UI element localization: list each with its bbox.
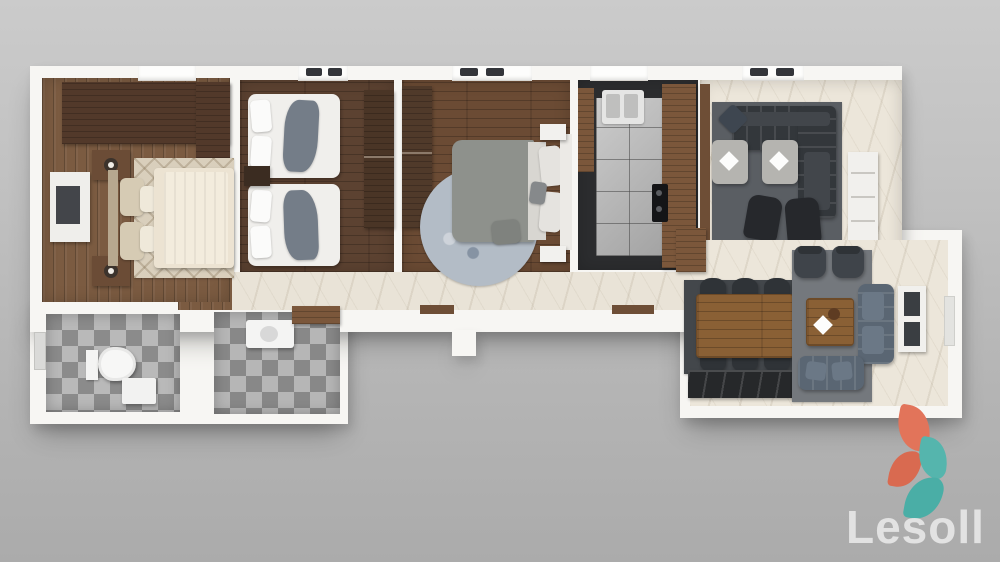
- bathroom-window: [34, 332, 46, 370]
- ac-vent: [776, 68, 794, 76]
- vanity-basin: [260, 326, 278, 342]
- master-bed-headboard: [108, 170, 118, 266]
- accent-chair: [784, 197, 822, 246]
- wardrobe-seam: [402, 152, 432, 154]
- window: [138, 66, 196, 81]
- media-shelf-unit: [848, 152, 878, 240]
- pantry-cabinet: [676, 228, 706, 272]
- sofa-cushion: [862, 326, 884, 354]
- cooktop-knob: [656, 206, 662, 212]
- wardrobe-seam: [364, 156, 394, 158]
- toilet-bowl: [98, 347, 136, 381]
- sideboard: [688, 370, 794, 398]
- pillow: [250, 99, 273, 133]
- master-blanket: [164, 172, 228, 264]
- sink-basin: [624, 94, 638, 118]
- brand-wordmark: Lesoll: [846, 500, 985, 554]
- tv-screen: [56, 186, 80, 224]
- sofa-cushion: [831, 361, 853, 381]
- toilet-tank: [86, 350, 98, 380]
- kids-wardrobe: [364, 90, 394, 228]
- pillow: [250, 135, 272, 168]
- cooktop-knob: [656, 190, 662, 196]
- shelf-line: [851, 172, 875, 174]
- bathroom-wood-counter: [292, 306, 340, 324]
- kitchen-cabinet-left: [578, 88, 594, 172]
- ac-vent: [460, 68, 478, 76]
- cushion: [529, 181, 548, 205]
- bed-throw: [283, 189, 319, 260]
- table-decor: [828, 308, 840, 320]
- bathroom-cabinet: [122, 378, 156, 404]
- pillow: [250, 225, 272, 258]
- framed-art: [904, 292, 920, 316]
- bedside-shelf: [540, 124, 566, 140]
- master-wardrobe-corner: [196, 82, 230, 170]
- side-window: [944, 296, 955, 346]
- sink-basin: [606, 94, 620, 118]
- bed-headboard: [560, 134, 572, 250]
- door-threshold: [612, 305, 654, 314]
- ac-vent: [750, 68, 768, 76]
- framed-art: [904, 322, 920, 346]
- shelf-line: [851, 220, 875, 222]
- sofa-cushion: [805, 361, 827, 382]
- ac-vent: [486, 68, 504, 76]
- logo-leaf-teal-top: [915, 436, 951, 481]
- table-lamp: [104, 264, 118, 278]
- shelf-line: [851, 196, 875, 198]
- sofa-seat-line: [738, 112, 830, 126]
- kids-nightstand: [244, 166, 270, 186]
- armchair-back: [836, 246, 860, 254]
- pouf: [491, 219, 521, 246]
- ac-vent: [328, 68, 342, 76]
- window: [590, 66, 648, 81]
- armchair-back: [798, 246, 822, 254]
- dining-table: [696, 294, 794, 358]
- pillow: [250, 189, 273, 223]
- entry-wall-stub: [452, 330, 476, 356]
- bedside-shelf: [540, 246, 566, 262]
- floorplan-render: Lesoll: [0, 0, 1000, 562]
- door-threshold: [420, 305, 454, 314]
- ac-vent: [306, 68, 322, 76]
- sofa-cushion: [862, 292, 884, 320]
